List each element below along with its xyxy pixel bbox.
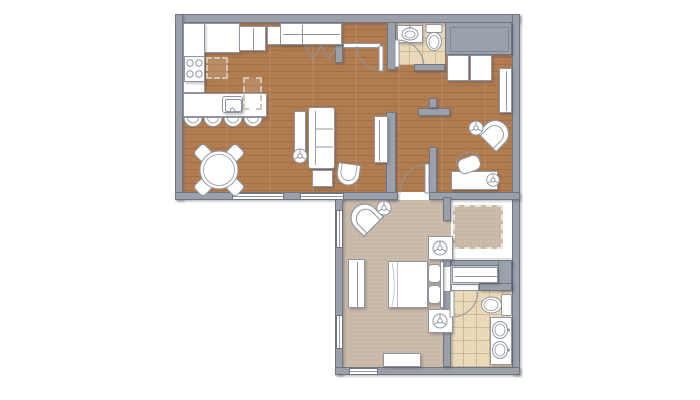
- floor-plan: [0, 0, 700, 400]
- wall: [429, 147, 437, 196]
- pocket-door: [443, 266, 451, 292]
- mechanical-block: [445, 22, 512, 55]
- window-icon: [232, 193, 284, 200]
- refrigerator-icon: [239, 26, 266, 51]
- wall: [443, 197, 451, 221]
- linen-cabinet-icon: [452, 267, 498, 283]
- nightstand-icon: [428, 236, 453, 260]
- powder-sink-icon: [397, 25, 423, 43]
- wall: [414, 64, 445, 71]
- island-sink-icon: [222, 96, 243, 113]
- bed-icon: [388, 261, 428, 308]
- storage-cabinet-icon: [470, 55, 492, 81]
- window-icon: [336, 210, 343, 248]
- window-icon: [300, 193, 344, 200]
- sofa-icon: [308, 107, 335, 169]
- tv-console-icon: [374, 116, 388, 163]
- column: [429, 98, 437, 108]
- wall: [387, 22, 396, 70]
- bathroom-threshold: [451, 284, 479, 291]
- entry-threshold: [343, 43, 381, 48]
- headboard: [440, 261, 444, 308]
- upper-cabinet-icon: [206, 57, 228, 79]
- wall: [479, 283, 512, 291]
- wall: [343, 192, 398, 200]
- closet-shelving-icon: [453, 205, 503, 249]
- wall: [335, 45, 343, 63]
- bench-icon: [383, 353, 421, 367]
- window-icon: [336, 315, 343, 349]
- desk-icon: [451, 171, 498, 190]
- console-table-icon: [294, 111, 306, 155]
- end-table-icon: [312, 170, 333, 187]
- double-vanity-icon: [490, 317, 512, 365]
- window-icon: [349, 368, 378, 375]
- wall: [418, 108, 450, 116]
- storage-cabinet-icon: [447, 55, 469, 81]
- hall-closet-icon: [499, 68, 512, 113]
- dresser-icon: [348, 259, 365, 308]
- wall: [175, 14, 183, 200]
- cooktop-icon: [184, 56, 205, 82]
- upper-cabinet-icon: [243, 77, 262, 110]
- entry-closet-icon: [280, 23, 342, 45]
- nightstand-icon: [428, 309, 453, 333]
